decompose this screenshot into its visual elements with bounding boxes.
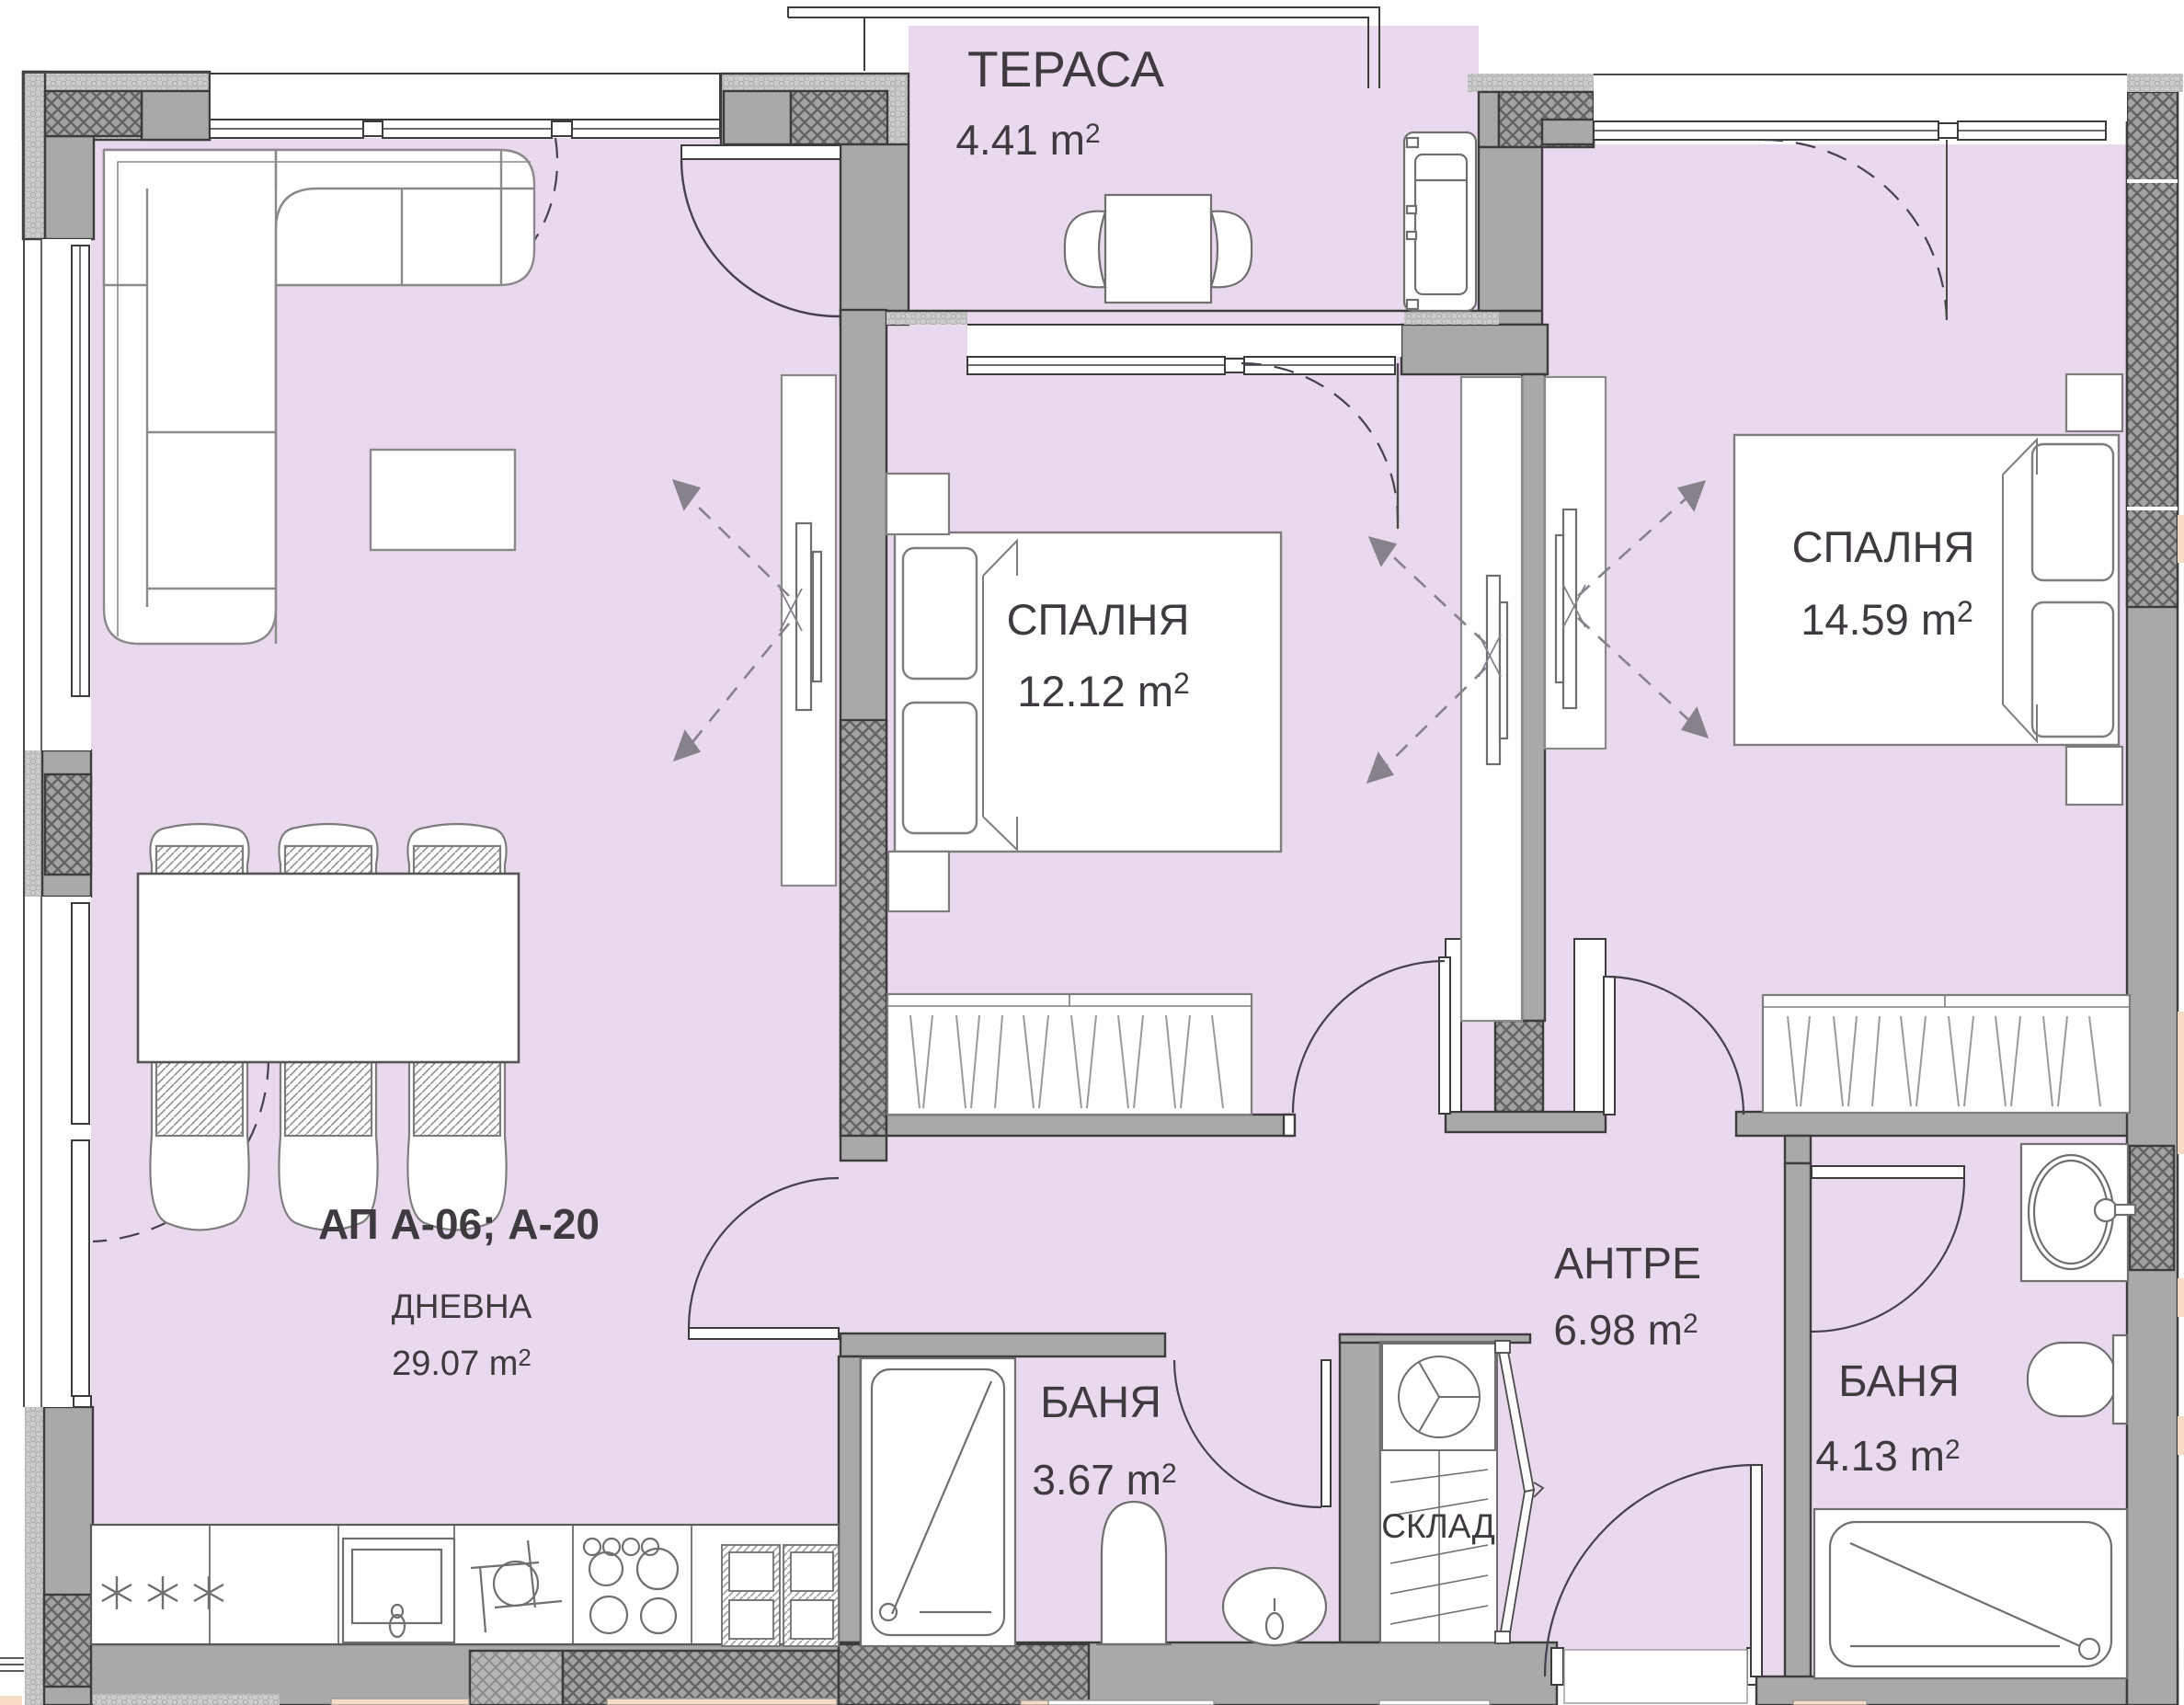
svg-text:4.41 m2: 4.41 m2 [955,116,1100,164]
svg-text:АП А-06; А-20: АП А-06; А-20 [318,1200,600,1248]
svg-text:БАНЯ: БАНЯ [1838,1357,1960,1406]
svg-text:СКЛАД: СКЛАД [1381,1507,1495,1545]
svg-text:АНТРЕ: АНТРЕ [1554,1240,1701,1288]
svg-text:4.13 m2: 4.13 m2 [1815,1432,1960,1480]
svg-text:ДНЕВНА: ДНЕВНА [392,1287,532,1325]
svg-text:СПАЛНЯ: СПАЛНЯ [1792,522,1975,571]
svg-text:6.98 m2: 6.98 m2 [1553,1306,1698,1354]
svg-text:ТЕРАСА: ТЕРАСА [967,40,1164,97]
svg-text:14.59 m2: 14.59 m2 [1801,595,1973,644]
svg-text:29.07 m2: 29.07 m2 [392,1344,532,1383]
svg-text:12.12 m2: 12.12 m2 [1017,667,1190,715]
svg-text:БАНЯ: БАНЯ [1040,1379,1161,1427]
svg-text:СПАЛНЯ: СПАЛНЯ [1007,595,1190,644]
svg-text:3.67 m2: 3.67 m2 [1032,1456,1176,1504]
